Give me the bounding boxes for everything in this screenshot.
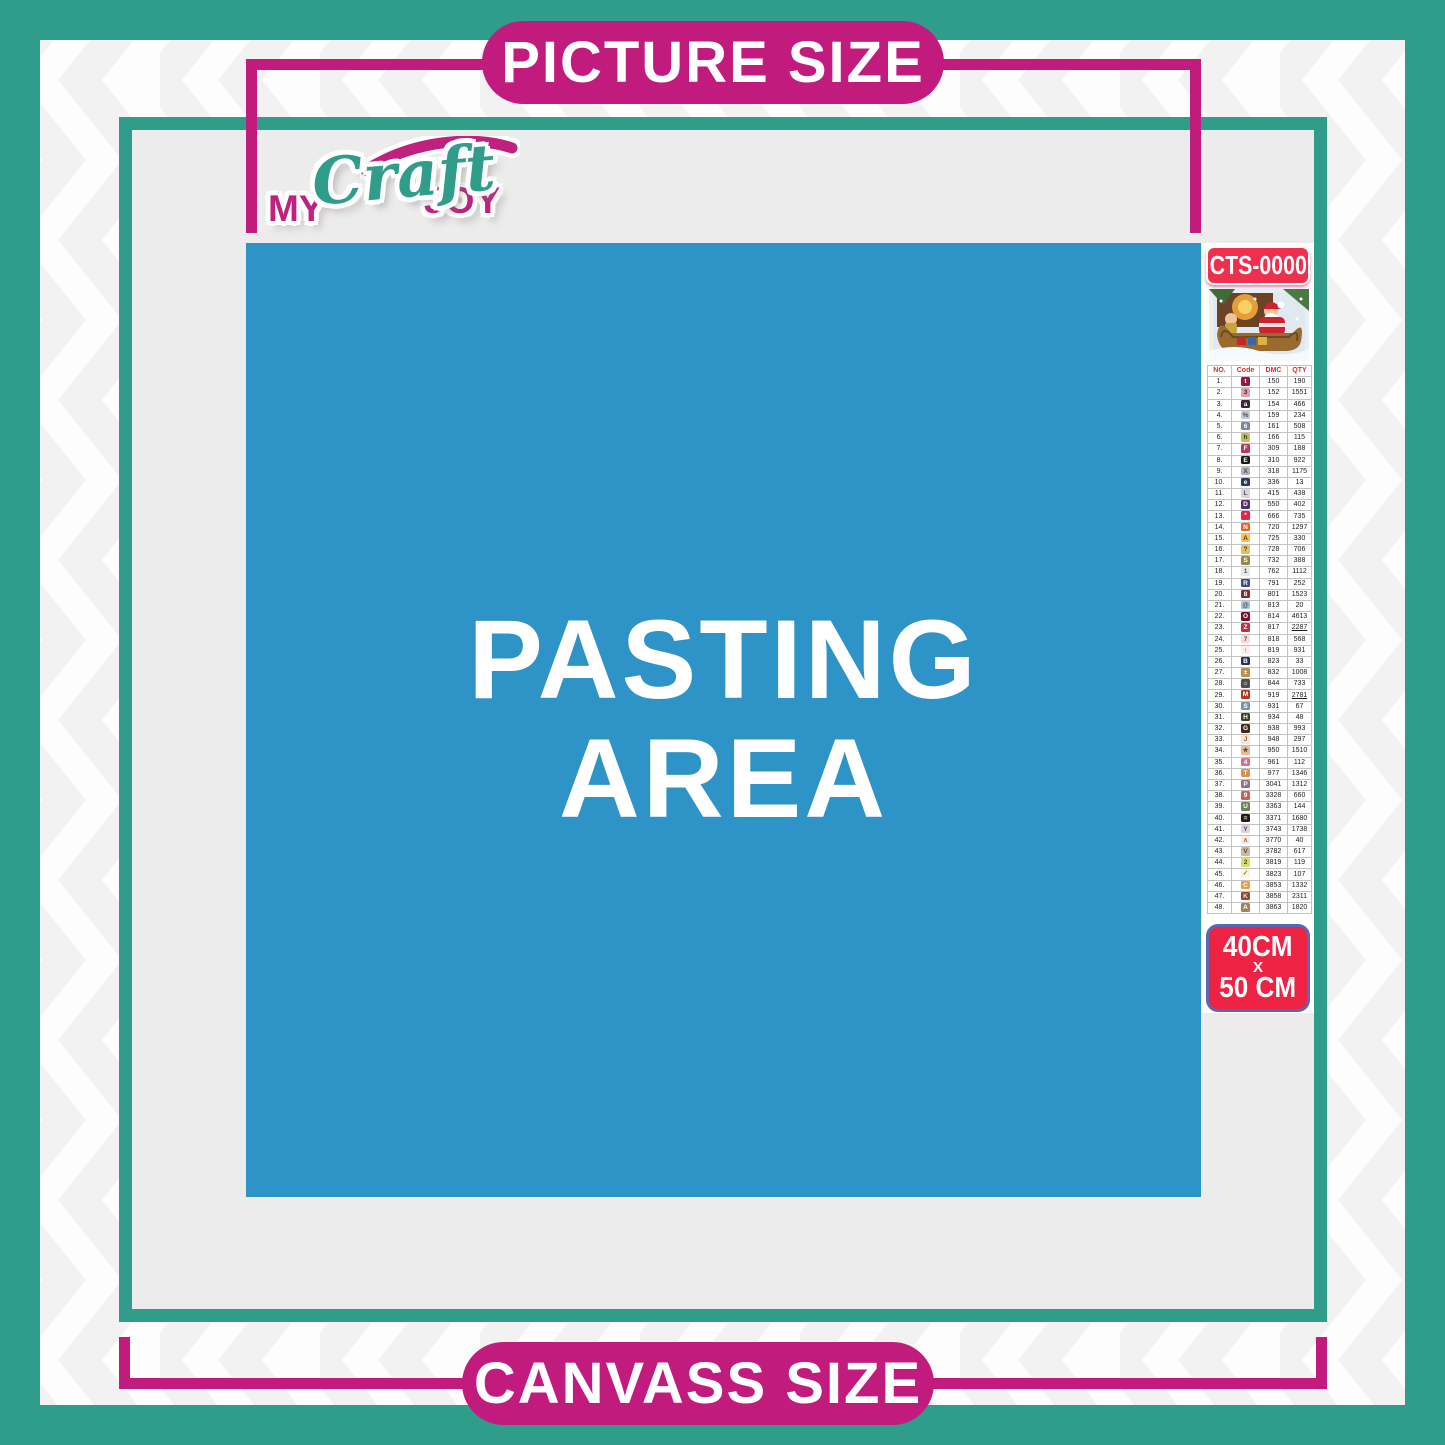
row-dmc: 819	[1260, 645, 1288, 656]
code-symbol: K	[1241, 892, 1250, 901]
code-symbol: 1	[1241, 567, 1250, 576]
row-code: J	[1232, 735, 1260, 746]
canvass-size-label: CANVASS SIZE	[462, 1342, 934, 1425]
row-qty: 617	[1288, 847, 1312, 858]
picture-size-label-text: PICTURE SIZE	[501, 29, 925, 96]
row-code: P	[1232, 779, 1260, 790]
row-number: 10.	[1208, 477, 1232, 488]
pasting-area-line2: AREA	[559, 720, 888, 839]
row-code: a	[1232, 399, 1260, 410]
row-number: 2.	[1208, 388, 1232, 399]
legend-row: 3.a154466	[1208, 399, 1312, 410]
legend-row: 13.*666735	[1208, 511, 1312, 522]
row-code: t	[1232, 377, 1260, 388]
row-qty: 1297	[1288, 522, 1312, 533]
code-symbol: U	[1241, 802, 1250, 811]
dimension-width: 40CM	[1223, 934, 1293, 961]
row-dmc: 318	[1260, 466, 1288, 477]
row-dmc: 3328	[1260, 791, 1288, 802]
legend-row: 11.L415438	[1208, 489, 1312, 500]
code-symbol: E	[1241, 456, 1250, 465]
code-symbol: C	[1241, 881, 1250, 890]
row-dmc: 159	[1260, 410, 1288, 421]
legend-row: 12.D550402	[1208, 500, 1312, 511]
row-qty: 1332	[1288, 880, 1312, 891]
code-symbol: H	[1241, 713, 1250, 722]
legend-row: 24.7818568	[1208, 634, 1312, 645]
code-symbol: t	[1241, 377, 1250, 386]
row-qty: 112	[1288, 757, 1312, 768]
legend-row: 27.±8321008	[1208, 668, 1312, 679]
row-qty: 931	[1288, 645, 1312, 656]
row-dmc: 3371	[1260, 813, 1288, 824]
infographic-canvas-layout: PICTURE SIZE CANVASS SIZE MY JOY Craft P…	[0, 0, 1445, 1445]
row-number: 41.	[1208, 824, 1232, 835]
picture-size-bracket-right	[1190, 59, 1201, 233]
row-dmc: 150	[1260, 377, 1288, 388]
code-symbol: *	[1241, 511, 1250, 520]
row-code: ☼	[1232, 679, 1260, 690]
row-number: 6.	[1208, 433, 1232, 444]
row-number: 36.	[1208, 768, 1232, 779]
row-code: C	[1232, 880, 1260, 891]
row-number: 37.	[1208, 779, 1232, 790]
row-qty: 40	[1288, 835, 1312, 846]
row-code: e	[1232, 477, 1260, 488]
row-number: 39.	[1208, 802, 1232, 813]
row-code: F	[1232, 444, 1260, 455]
row-number: 28.	[1208, 679, 1232, 690]
row-number: 15.	[1208, 533, 1232, 544]
row-qty: 733	[1288, 679, 1312, 690]
code-symbol: 4	[1241, 758, 1250, 767]
row-dmc: 3782	[1260, 847, 1288, 858]
row-number: 33.	[1208, 735, 1232, 746]
code-symbol: F	[1241, 444, 1250, 453]
legend-row: 30.S93167	[1208, 701, 1312, 712]
row-number: 29.	[1208, 690, 1232, 701]
row-qty: 706	[1288, 545, 1312, 556]
legend-row: 35.4961112	[1208, 757, 1312, 768]
code-symbol: S	[1241, 702, 1250, 711]
row-dmc: 977	[1260, 768, 1288, 779]
row-number: 20.	[1208, 589, 1232, 600]
row-code: @	[1232, 600, 1260, 611]
row-qty: 508	[1288, 421, 1312, 432]
row-number: 24.	[1208, 634, 1232, 645]
row-code: ?	[1232, 545, 1260, 556]
legend-row: 37.P30411312	[1208, 779, 1312, 790]
code-symbol: L	[1241, 489, 1250, 498]
row-dmc: 950	[1260, 746, 1288, 757]
legend-row: 44.23819119	[1208, 858, 1312, 869]
code-symbol: 9	[1241, 791, 1250, 800]
row-dmc: 3858	[1260, 891, 1288, 902]
row-number: 47.	[1208, 891, 1232, 902]
row-number: 5.	[1208, 421, 1232, 432]
row-dmc: 813	[1260, 600, 1288, 611]
row-qty: 4613	[1288, 612, 1312, 623]
row-number: 38.	[1208, 791, 1232, 802]
row-qty: 922	[1288, 455, 1312, 466]
color-legend-table: NO.CodeDMCQTY 1.t1501902.315215513.a1544…	[1207, 365, 1311, 914]
row-qty: 735	[1288, 511, 1312, 522]
row-qty: 660	[1288, 791, 1312, 802]
legend-row: 18.17621112	[1208, 567, 1312, 578]
row-dmc: 550	[1260, 500, 1288, 511]
code-symbol: D	[1241, 500, 1250, 509]
legend-header-cell: Code	[1232, 366, 1260, 377]
row-number: 7.	[1208, 444, 1232, 455]
legend-row: 2.31521551	[1208, 388, 1312, 399]
code-symbol: a	[1241, 400, 1250, 409]
row-qty: 466	[1288, 399, 1312, 410]
legend-row: 33.J948297	[1208, 735, 1312, 746]
legend-row: 17.S732388	[1208, 556, 1312, 567]
legend-row: 31.H93448	[1208, 712, 1312, 723]
row-qty: 20	[1288, 600, 1312, 611]
row-number: 40.	[1208, 813, 1232, 824]
legend-row: 8.E310922	[1208, 455, 1312, 466]
row-code: %	[1232, 410, 1260, 421]
row-qty: 1346	[1288, 768, 1312, 779]
row-qty: 2781	[1288, 690, 1312, 701]
row-code: D	[1232, 500, 1260, 511]
row-code: V	[1232, 847, 1260, 858]
kit-code-text: CTS-0000	[1209, 250, 1306, 281]
code-symbol: ?	[1241, 545, 1250, 554]
row-qty: 1008	[1288, 668, 1312, 679]
legend-row: 21.@81320	[1208, 600, 1312, 611]
legend-row: 7.F309188	[1208, 444, 1312, 455]
row-number: 16.	[1208, 545, 1232, 556]
code-symbol: @	[1241, 601, 1250, 610]
row-number: 13.	[1208, 511, 1232, 522]
row-number: 19.	[1208, 578, 1232, 589]
row-code: ±	[1232, 668, 1260, 679]
legend-row: 29.M9192781	[1208, 690, 1312, 701]
row-qty: 438	[1288, 489, 1312, 500]
row-dmc: 152	[1260, 388, 1288, 399]
legend-body: 1.t1501902.315215513.a1544664.%1592345.6…	[1208, 377, 1312, 914]
row-number: 9.	[1208, 466, 1232, 477]
row-dmc: 3853	[1260, 880, 1288, 891]
code-symbol: O	[1241, 612, 1250, 621]
row-qty: 33	[1288, 656, 1312, 667]
row-dmc: 791	[1260, 578, 1288, 589]
row-qty: 1551	[1288, 388, 1312, 399]
code-symbol: T	[1241, 769, 1250, 778]
row-dmc: 310	[1260, 455, 1288, 466]
row-dmc: 823	[1260, 656, 1288, 667]
row-number: 32.	[1208, 724, 1232, 735]
row-qty: 115	[1288, 433, 1312, 444]
canvass-size-bracket-left	[119, 1337, 130, 1389]
row-code: ★	[1232, 746, 1260, 757]
row-code: U	[1232, 802, 1260, 813]
row-code: ✓	[1232, 869, 1260, 880]
row-number: 21.	[1208, 600, 1232, 611]
row-code: N	[1232, 522, 1260, 533]
row-number: 22.	[1208, 612, 1232, 623]
row-qty: 107	[1288, 869, 1312, 880]
code-symbol: A	[1241, 903, 1250, 912]
row-qty: 388	[1288, 556, 1312, 567]
row-dmc: 415	[1260, 489, 1288, 500]
row-dmc: 961	[1260, 757, 1288, 768]
row-code: E	[1232, 455, 1260, 466]
legend-row: 38.93328660	[1208, 791, 1312, 802]
row-number: 43.	[1208, 847, 1232, 858]
row-code: G	[1232, 724, 1260, 735]
row-qty: 330	[1288, 533, 1312, 544]
legend-row: 6.h166115	[1208, 433, 1312, 444]
row-code: 8	[1232, 589, 1260, 600]
row-qty: 1523	[1288, 589, 1312, 600]
row-qty: 1312	[1288, 779, 1312, 790]
row-code: R	[1232, 578, 1260, 589]
row-number: 34.	[1208, 746, 1232, 757]
legend-row: 47.K38582311	[1208, 891, 1312, 902]
legend-row: 26.B82333	[1208, 656, 1312, 667]
row-code: 3	[1232, 388, 1260, 399]
legend-row: 19.R791252	[1208, 578, 1312, 589]
row-qty: 1510	[1288, 746, 1312, 757]
row-number: 30.	[1208, 701, 1232, 712]
code-symbol: 6	[1241, 422, 1250, 431]
row-dmc: 732	[1260, 556, 1288, 567]
row-code: T	[1232, 768, 1260, 779]
legend-header-cell: QTY	[1288, 366, 1312, 377]
code-symbol: ∧	[1241, 836, 1250, 845]
row-number: 12.	[1208, 500, 1232, 511]
code-symbol: R	[1241, 579, 1250, 588]
canvass-size-bracket-right	[1316, 1337, 1327, 1389]
row-dmc: 3041	[1260, 779, 1288, 790]
row-dmc: 931	[1260, 701, 1288, 712]
row-qty: 2287	[1288, 623, 1312, 634]
legend-row: 46.C38531332	[1208, 880, 1312, 891]
row-number: 4.	[1208, 410, 1232, 421]
legend-row: 9.X3181175	[1208, 466, 1312, 477]
legend-row: 45.✓3823107	[1208, 869, 1312, 880]
row-dmc: 948	[1260, 735, 1288, 746]
legend-row: 42.∧377040	[1208, 835, 1312, 846]
code-symbol: ±	[1241, 668, 1250, 677]
row-number: 42.	[1208, 835, 1232, 846]
code-symbol: M	[1241, 690, 1250, 699]
row-qty: 1738	[1288, 824, 1312, 835]
row-code: O	[1232, 612, 1260, 623]
logo-word-craft: Craft	[309, 130, 498, 221]
row-dmc: 3770	[1260, 835, 1288, 846]
legend-row: 41.Y37431738	[1208, 824, 1312, 835]
legend-header-cell: DMC	[1260, 366, 1288, 377]
row-number: 17.	[1208, 556, 1232, 567]
row-code: Z	[1232, 623, 1260, 634]
row-qty: 1680	[1288, 813, 1312, 824]
row-code: 6	[1232, 421, 1260, 432]
row-number: 23.	[1208, 623, 1232, 634]
row-number: 18.	[1208, 567, 1232, 578]
row-number: 11.	[1208, 489, 1232, 500]
row-number: 48.	[1208, 903, 1232, 914]
row-dmc: 161	[1260, 421, 1288, 432]
code-symbol: Y	[1241, 825, 1250, 834]
row-code: h	[1232, 433, 1260, 444]
code-symbol: =	[1241, 814, 1250, 823]
legend-row: 5.6161508	[1208, 421, 1312, 432]
legend-row: 36.T9771346	[1208, 768, 1312, 779]
row-code: Y	[1232, 824, 1260, 835]
row-code: A	[1232, 533, 1260, 544]
row-dmc: 154	[1260, 399, 1288, 410]
code-symbol: J	[1241, 735, 1250, 744]
row-number: 8.	[1208, 455, 1232, 466]
code-symbol: B	[1241, 657, 1250, 666]
row-qty: 13	[1288, 477, 1312, 488]
row-qty: 993	[1288, 724, 1312, 735]
row-code: *	[1232, 511, 1260, 522]
row-dmc: 801	[1260, 589, 1288, 600]
row-qty: 190	[1288, 377, 1312, 388]
row-code: M	[1232, 690, 1260, 701]
row-qty: 188	[1288, 444, 1312, 455]
kit-code-badge: CTS-0000	[1206, 246, 1310, 285]
row-number: 25.	[1208, 645, 1232, 656]
legend-header-row: NO.CodeDMCQTY	[1208, 366, 1312, 377]
row-number: 45.	[1208, 869, 1232, 880]
row-dmc: 3363	[1260, 802, 1288, 813]
legend-row: 43.V3782617	[1208, 847, 1312, 858]
row-code: =	[1232, 813, 1260, 824]
row-code: B	[1232, 656, 1260, 667]
row-code: 7	[1232, 634, 1260, 645]
legend-row: 1.t150190	[1208, 377, 1312, 388]
row-number: 26.	[1208, 656, 1232, 667]
row-dmc: 832	[1260, 668, 1288, 679]
row-dmc: 725	[1260, 533, 1288, 544]
code-symbol: 2	[1241, 858, 1250, 867]
pasting-area-line1: PASTING	[468, 601, 979, 720]
legend-row: 48.A38631820	[1208, 903, 1312, 914]
row-number: 14.	[1208, 522, 1232, 533]
row-code: H	[1232, 712, 1260, 723]
row-dmc: 336	[1260, 477, 1288, 488]
code-symbol: ↑	[1241, 646, 1250, 655]
legend-row: 16.?728706	[1208, 545, 1312, 556]
row-dmc: 720	[1260, 522, 1288, 533]
legend-row: 4.%159234	[1208, 410, 1312, 421]
code-symbol: G	[1241, 724, 1250, 733]
row-code: 2	[1232, 858, 1260, 869]
row-dmc: 3819	[1260, 858, 1288, 869]
row-dmc: 817	[1260, 623, 1288, 634]
row-number: 1.	[1208, 377, 1232, 388]
row-qty: 568	[1288, 634, 1312, 645]
code-symbol: A	[1241, 534, 1250, 543]
row-qty: 234	[1288, 410, 1312, 421]
row-dmc: 938	[1260, 724, 1288, 735]
canvas-dimensions-badge: 40CM X 50 CM	[1206, 924, 1310, 1012]
brand-logo: MY JOY Craft	[262, 142, 542, 246]
code-symbol: ★	[1241, 746, 1250, 755]
legend-row: 32.G938993	[1208, 724, 1312, 735]
row-qty: 48	[1288, 712, 1312, 723]
row-dmc: 818	[1260, 634, 1288, 645]
row-code: L	[1232, 489, 1260, 500]
row-code: 9	[1232, 791, 1260, 802]
code-symbol: h	[1241, 433, 1250, 442]
legend-row: 39.U3363144	[1208, 802, 1312, 813]
code-symbol: 8	[1241, 590, 1250, 599]
legend-row: 15.A725330	[1208, 533, 1312, 544]
row-qty: 144	[1288, 802, 1312, 813]
row-number: 27.	[1208, 668, 1232, 679]
row-code: S	[1232, 701, 1260, 712]
code-symbol: 3	[1241, 388, 1250, 397]
row-qty: 67	[1288, 701, 1312, 712]
code-symbol: Z	[1241, 623, 1250, 632]
code-symbol: X	[1241, 467, 1250, 476]
legend-row: 40.=33711680	[1208, 813, 1312, 824]
row-dmc: 844	[1260, 679, 1288, 690]
row-code: 1	[1232, 567, 1260, 578]
row-qty: 1112	[1288, 567, 1312, 578]
row-qty: 2311	[1288, 891, 1312, 902]
row-dmc: 3823	[1260, 869, 1288, 880]
dimension-height: 50 CM	[1220, 975, 1297, 1002]
picture-size-label: PICTURE SIZE	[482, 21, 944, 104]
row-dmc: 3863	[1260, 903, 1288, 914]
row-dmc: 3743	[1260, 824, 1288, 835]
row-code: S	[1232, 556, 1260, 567]
legend-row: 22.O8144613	[1208, 612, 1312, 623]
row-number: 31.	[1208, 712, 1232, 723]
code-symbol: P	[1241, 780, 1250, 789]
legend-row: 34.★9501510	[1208, 746, 1312, 757]
legend-row: 14.N7201297	[1208, 522, 1312, 533]
code-symbol: N	[1241, 523, 1250, 532]
row-code: ↑	[1232, 645, 1260, 656]
code-symbol: V	[1241, 847, 1250, 856]
row-dmc: 166	[1260, 433, 1288, 444]
row-qty: 297	[1288, 735, 1312, 746]
row-qty: 1175	[1288, 466, 1312, 477]
row-dmc: 762	[1260, 567, 1288, 578]
legend-row: 28.☼844733	[1208, 679, 1312, 690]
code-symbol: 7	[1241, 635, 1250, 644]
legend-row: 23.Z8172287	[1208, 623, 1312, 634]
code-symbol: e	[1241, 478, 1250, 487]
row-code: K	[1232, 891, 1260, 902]
canvass-size-label-text: CANVASS SIZE	[474, 1350, 922, 1417]
row-code: X	[1232, 466, 1260, 477]
pasting-area: PASTING AREA	[246, 243, 1201, 1197]
legend-row: 20.88011523	[1208, 589, 1312, 600]
row-dmc: 666	[1260, 511, 1288, 522]
row-dmc: 728	[1260, 545, 1288, 556]
legend-header-cell: NO.	[1208, 366, 1232, 377]
row-code: 4	[1232, 757, 1260, 768]
row-dmc: 919	[1260, 690, 1288, 701]
code-symbol: ✓	[1241, 869, 1250, 878]
row-code: ∧	[1232, 835, 1260, 846]
row-dmc: 934	[1260, 712, 1288, 723]
code-symbol: S	[1241, 556, 1250, 565]
row-dmc: 309	[1260, 444, 1288, 455]
row-number: 44.	[1208, 858, 1232, 869]
